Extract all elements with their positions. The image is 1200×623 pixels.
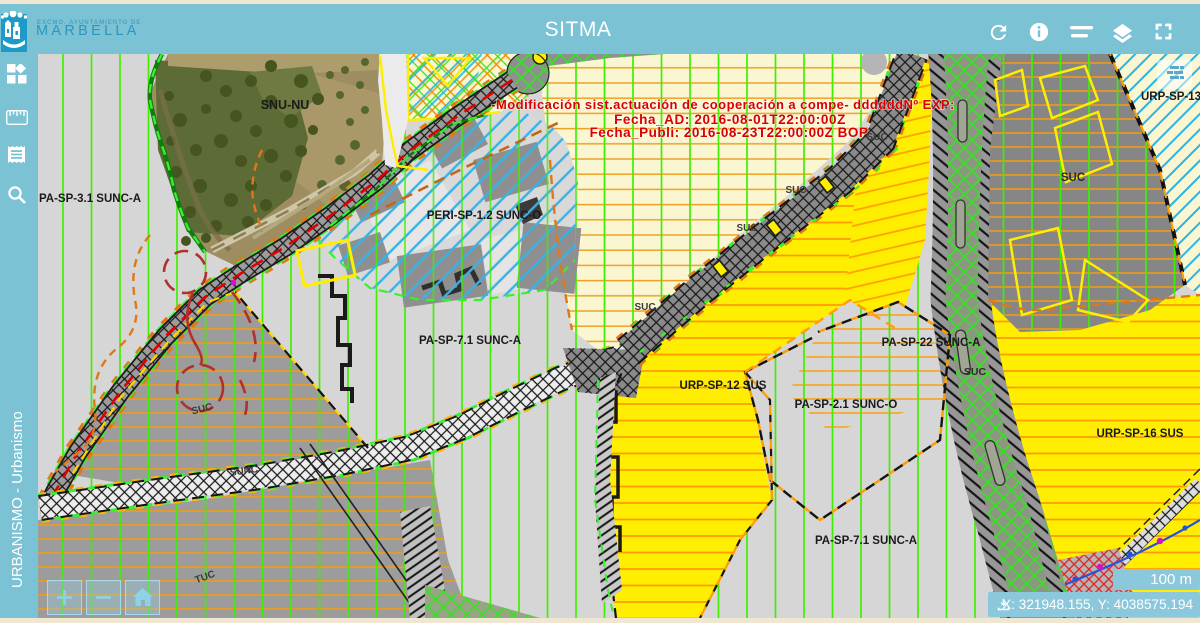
svg-text:URP-SP-12 SUS: URP-SP-12 SUS bbox=[680, 380, 767, 392]
svg-text:SUC: SUC bbox=[1061, 172, 1085, 184]
svg-text:URP-SP-16 SUS: URP-SP-16 SUS bbox=[1097, 428, 1184, 440]
svg-text:PA-SP-7.1 SUNC-A: PA-SP-7.1 SUNC-A bbox=[815, 535, 917, 547]
svg-text:SUC: SUC bbox=[634, 302, 655, 313]
svg-text:SUC: SUC bbox=[866, 132, 887, 143]
svg-text:PA-SP-3.1 SUNC-A: PA-SP-3.1 SUNC-A bbox=[39, 193, 141, 205]
svg-text:PA-SP-7.1 SUNC-A: PA-SP-7.1 SUNC-A bbox=[419, 335, 521, 347]
svg-text:URP-SP-13: URP-SP-13 bbox=[1141, 91, 1200, 103]
svg-text:SUC: SUC bbox=[736, 223, 757, 234]
svg-text:SNU-NU: SNU-NU bbox=[261, 98, 310, 112]
svg-text:SUC: SUC bbox=[964, 366, 987, 378]
svg-text:PA-SP-22 SUNC-A: PA-SP-22 SUNC-A bbox=[882, 337, 981, 349]
svg-text:PA-SP-2.1 SUNC-O: PA-SP-2.1 SUNC-O bbox=[795, 399, 898, 411]
svg-text:-Modificación sist.actuación d: -Modificación sist.actuación de cooperac… bbox=[491, 97, 955, 112]
svg-text:SUC: SUC bbox=[785, 185, 806, 196]
svg-text:Fecha_Publi: 2016-08-23T22:00:: Fecha_Publi: 2016-08-23T22:00:00Z BOP bbox=[590, 125, 869, 140]
svg-text:PERI-SP-1.2 SUNC-O: PERI-SP-1.2 SUNC-O bbox=[427, 210, 541, 222]
